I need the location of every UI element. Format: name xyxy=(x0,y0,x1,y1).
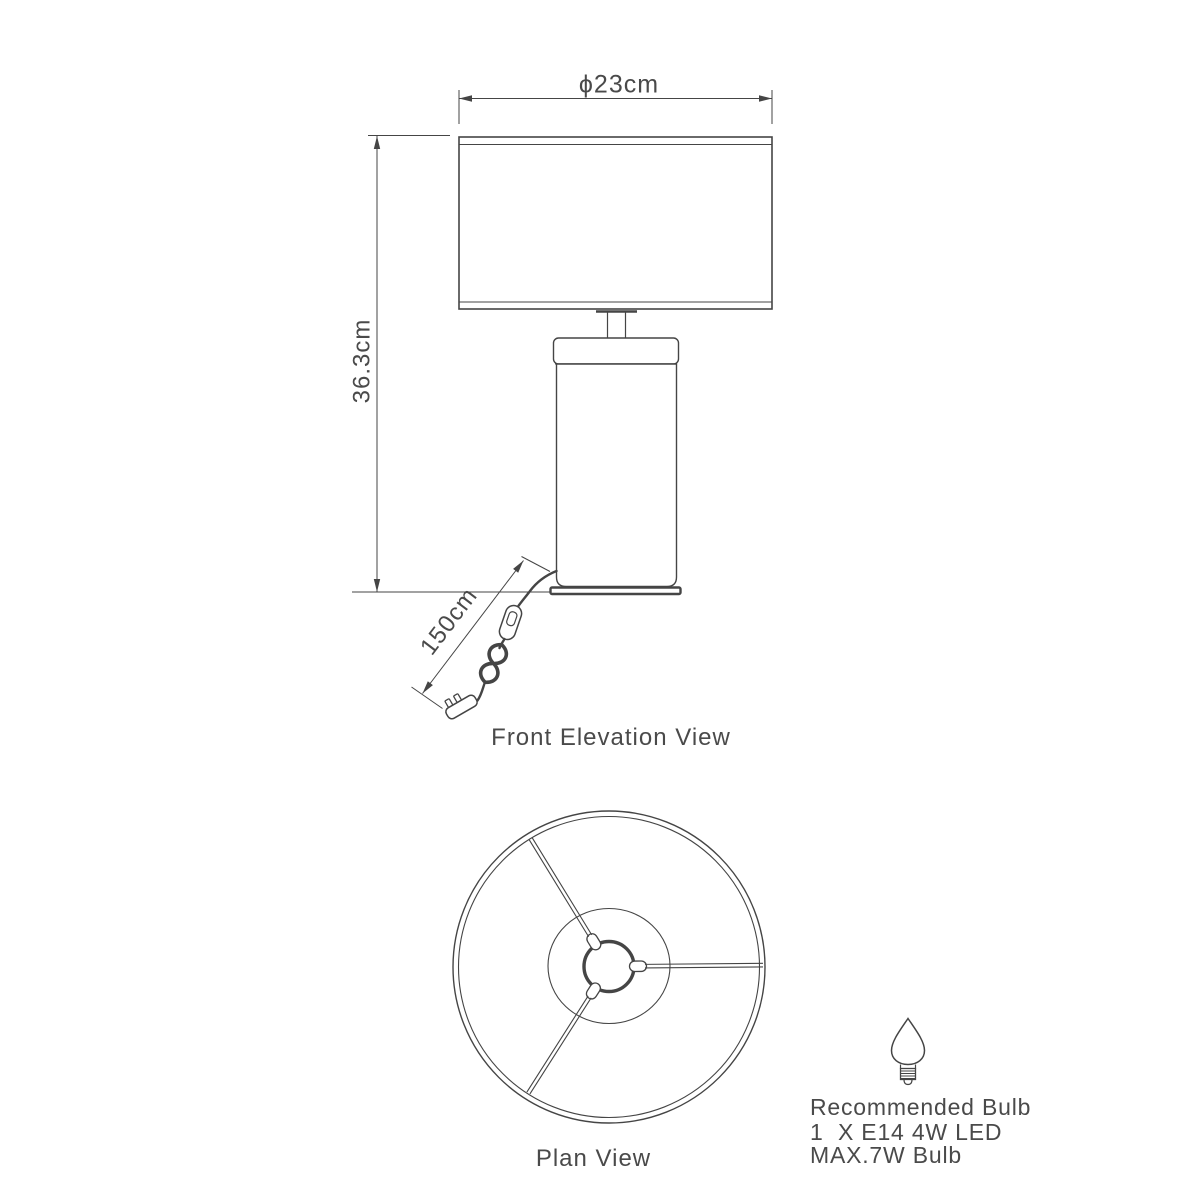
bulb-recommendation: Recommended Bulb 1 X E14 4W LED MAX.7W B… xyxy=(810,1019,1031,1169)
cord-length-label: 150cm xyxy=(415,583,483,661)
extension-line-top xyxy=(522,557,551,572)
shade-outline xyxy=(459,137,772,309)
spoke-upper-left xyxy=(526,836,603,952)
spoke-arms xyxy=(527,996,591,1094)
bulb-contact-tip xyxy=(904,1080,912,1085)
spoke-arms xyxy=(529,838,592,937)
stem xyxy=(608,311,626,338)
arrowhead-upper-icon xyxy=(513,559,526,573)
bulb-heading: Recommended Bulb xyxy=(810,1094,1031,1120)
arrowhead-lower-icon xyxy=(420,681,433,695)
front-elevation-caption: Front Elevation View xyxy=(491,724,731,751)
shade-diameter-label: ϕ23cm xyxy=(579,71,659,99)
body-cap xyxy=(554,338,679,364)
spoke-connector xyxy=(629,961,646,972)
body-cylinder xyxy=(557,364,677,587)
lamp-body xyxy=(551,338,681,594)
bulb-max-wattage: MAX.7W Bulb xyxy=(810,1142,962,1168)
plug-body xyxy=(444,694,479,721)
front-elevation-view: ϕ23cm 36.3cm xyxy=(349,71,773,752)
bulb-glass xyxy=(892,1019,925,1065)
arrowhead-left-icon xyxy=(459,95,472,101)
body-base xyxy=(551,588,681,595)
plan-view: Plan View xyxy=(453,811,765,1172)
spoke-arms xyxy=(645,963,763,968)
inline-switch xyxy=(497,603,524,641)
spoke-right xyxy=(629,960,763,972)
lamp-shade xyxy=(459,137,772,309)
candle-bulb-icon xyxy=(892,1019,925,1085)
power-plug xyxy=(440,687,478,720)
spoke-lower-left xyxy=(524,981,602,1096)
lamp-dimension-drawing: ϕ23cm 36.3cm xyxy=(0,0,1200,1200)
height-dimension: 36.3cm xyxy=(349,136,451,593)
extension-line-bottom xyxy=(412,687,443,709)
arrowhead-up-icon xyxy=(374,136,380,149)
arrowhead-down-icon xyxy=(374,579,380,592)
overall-height-label: 36.3cm xyxy=(349,319,376,404)
cord-lower-segment xyxy=(478,682,486,701)
arrowhead-right-icon xyxy=(759,95,772,101)
body-top-circle xyxy=(548,909,670,1024)
cord-length-dimension: 150cm xyxy=(412,557,551,709)
cord-figure8-coil xyxy=(477,641,509,685)
plan-view-caption: Plan View xyxy=(536,1145,651,1172)
diameter-dimension: ϕ23cm xyxy=(459,71,772,125)
bulb-screw-base xyxy=(901,1069,916,1080)
